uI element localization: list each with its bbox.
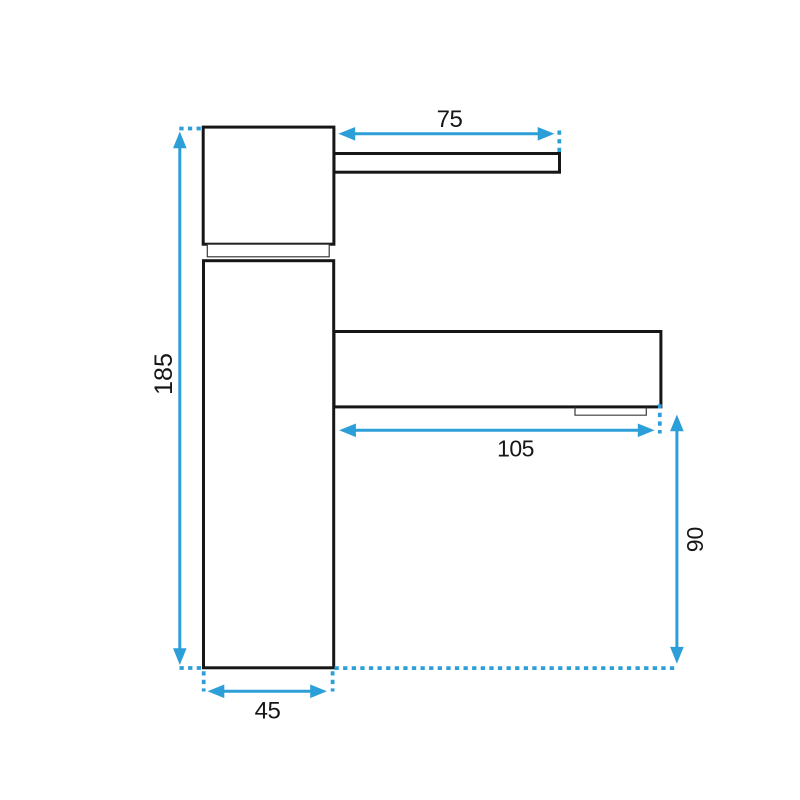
svg-text:90: 90 bbox=[682, 527, 708, 553]
svg-text:45: 45 bbox=[255, 698, 281, 725]
svg-text:105: 105 bbox=[497, 436, 534, 462]
svg-text:75: 75 bbox=[437, 106, 463, 133]
svg-text:185: 185 bbox=[150, 353, 178, 395]
